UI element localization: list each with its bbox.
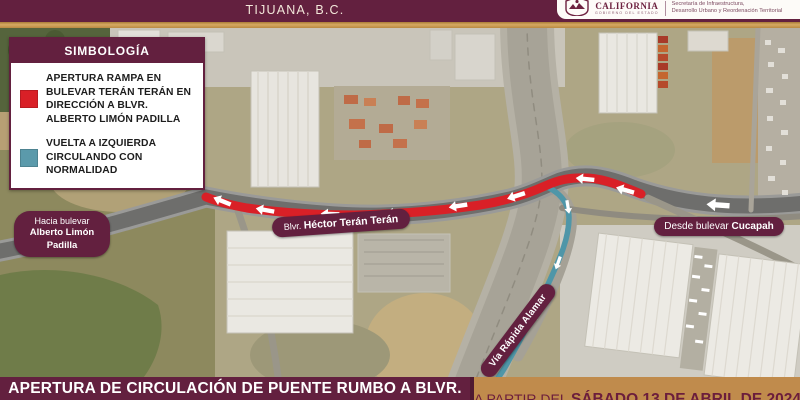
date-prefix: A PARTIR DEL (474, 391, 567, 400)
label-hacia-limon-padilla: Hacia bulevar Alberto Limón Padilla (14, 211, 110, 257)
logo-brand-block: CALIFORNIA GOBIERNO DEL ESTADO (595, 2, 659, 16)
page-title: TIJUANA, B.C. (0, 3, 590, 17)
legend-item-label: VUELTA A IZQUIERDA CIRCULANDO CON NORMAL… (46, 137, 195, 178)
government-logo: CALIFORNIA GOBIERNO DEL ESTADO Secretarí… (557, 0, 800, 19)
legend-item-left-turn: VUELTA A IZQUIERDA CIRCULANDO CON NORMAL… (20, 137, 195, 178)
label-prefix: Blvr. (283, 221, 301, 232)
footer-announcement-bar: APERTURA DE CIRCULACIÓN DE PUENTE RUMBO … (0, 377, 470, 400)
red-route-swatch (20, 90, 38, 108)
legend-box: SIMBOLOGÍA APERTURA RAMPA EN BULEVAR TER… (9, 37, 205, 190)
footer-announcement-text: APERTURA DE CIRCULACIÓN DE PUENTE RUMBO … (8, 380, 461, 398)
label-desde-cucapah: Desde bulevar Cucapah (654, 217, 784, 236)
logo-brand-subtext: GOBIERNO DEL ESTADO (595, 12, 659, 16)
logo-brand-text: CALIFORNIA (595, 2, 658, 11)
legend-item-label: APERTURA RAMPA EN BULEVAR TERÁN TERÁN EN… (46, 72, 195, 126)
state-emblem-icon (565, 0, 589, 16)
date-value: SÁBADO 13 DE ABRIL DE 2024 (571, 391, 800, 400)
label-name: Héctor Terán Terán (303, 213, 398, 232)
agency-line2: Desarrollo Urbano y Reordenación Territo… (672, 8, 783, 16)
legend-title: SIMBOLOGÍA (11, 39, 203, 63)
label-prefix: Desde bulevar (664, 221, 728, 232)
agency-line1: Secretaría de Infraestructura, (672, 1, 783, 9)
footer-date-text: A PARTIR DEL SÁBADO 13 DE ABRIL DE 2024 (474, 391, 800, 400)
logo-divider (665, 1, 666, 16)
label-line1: Hacia bulevar (18, 215, 106, 227)
legend-body: APERTURA RAMPA EN BULEVAR TERÁN TERÁN EN… (11, 63, 203, 188)
footer-date-bar: A PARTIR DEL SÁBADO 13 DE ABRIL DE 2024 (470, 377, 800, 400)
infographic: TIJUANA, B.C. CALIFORNIA GOBIERNO DEL ES… (0, 0, 800, 400)
agency-name: Secretaría de Infraestructura, Desarroll… (672, 1, 783, 16)
gold-divider (0, 22, 800, 28)
legend-item-ramp-opening: APERTURA RAMPA EN BULEVAR TERÁN TERÁN EN… (20, 72, 195, 126)
label-line2: Alberto Limón Padilla (18, 227, 106, 253)
teal-route-swatch (20, 149, 38, 167)
label-name: Cucapah (732, 221, 774, 232)
